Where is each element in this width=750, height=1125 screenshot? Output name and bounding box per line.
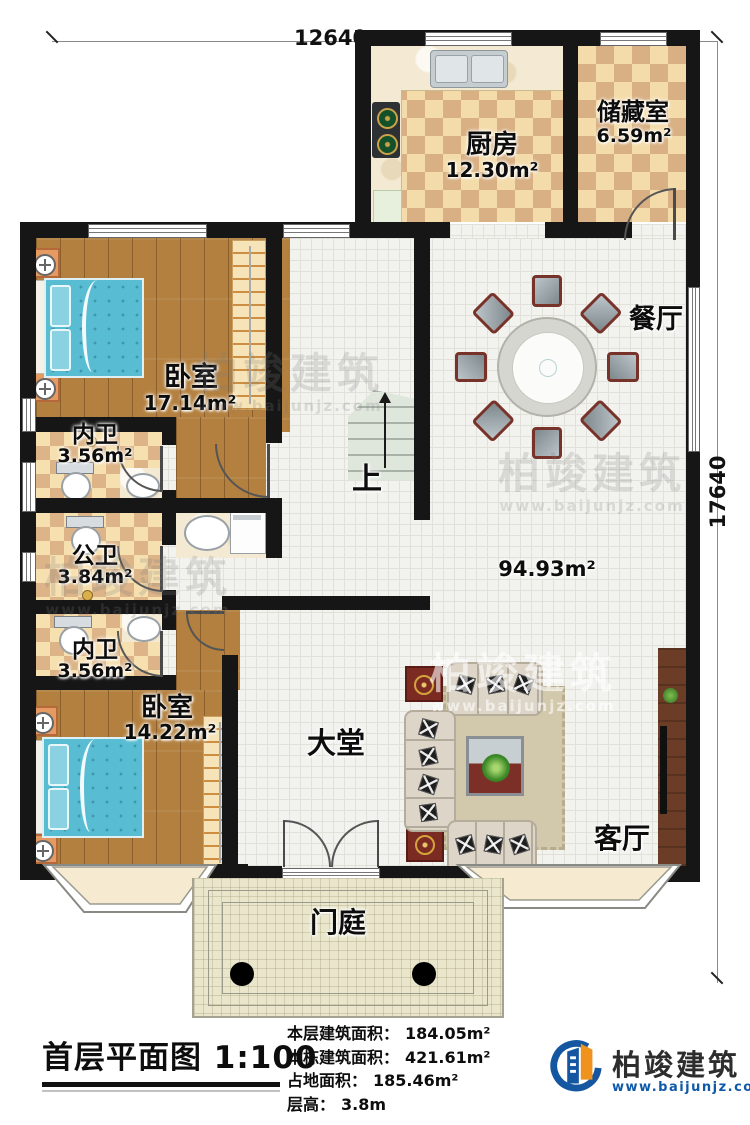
- bed: [42, 737, 144, 838]
- room-label-bedroom1: 卧室: [152, 364, 230, 392]
- fridge: [373, 190, 402, 226]
- window: [22, 462, 36, 512]
- floor-plan: 12640 17640: [0, 0, 750, 1125]
- entry-door-leaf: [377, 820, 379, 867]
- room-label-hall: 大堂: [298, 728, 374, 758]
- wall: [266, 238, 282, 443]
- burner: [377, 108, 398, 129]
- bed: [44, 278, 144, 378]
- washer-controls: [233, 515, 261, 520]
- wall: [686, 30, 700, 880]
- cushion: [455, 674, 476, 695]
- stat-row: 本层建筑面积：184.05m²: [287, 1022, 490, 1046]
- porch-column: [412, 962, 436, 986]
- burner: [377, 134, 398, 155]
- title-underline: [42, 1082, 280, 1087]
- plant-icon: [663, 688, 678, 703]
- brand-name: 柏竣建筑: [612, 1042, 740, 1084]
- toilet-bowl: [61, 472, 91, 501]
- coffee-table: [466, 736, 524, 796]
- wall: [563, 46, 578, 222]
- room-area-bedroom1: 17.14m²: [138, 393, 242, 414]
- kitchen-sink: [430, 50, 508, 88]
- window: [22, 552, 36, 582]
- title-underline-shadow: [42, 1090, 280, 1092]
- room-label-kitchen: 厨房: [452, 132, 532, 159]
- lamp-icon: [34, 378, 56, 400]
- cushion: [418, 774, 439, 795]
- porch-column: [230, 962, 254, 986]
- plan-stats: 本层建筑面积：184.05m² 本栋建筑面积：421.61m² 占地面积：185…: [287, 1022, 490, 1116]
- sofa-left: [404, 710, 456, 832]
- wardrobe: [232, 240, 266, 410]
- sofa-top: [447, 662, 543, 716]
- room-area-storage: 6.59m²: [592, 127, 676, 147]
- tv: [660, 726, 667, 814]
- dining-table-center: [539, 359, 557, 377]
- cushion: [484, 835, 504, 855]
- cushion: [418, 718, 439, 739]
- laundry-basin: [184, 515, 230, 551]
- plan-title: 首层平面图 1:100: [42, 1032, 317, 1077]
- door-leaf: [186, 611, 224, 614]
- door-leaf: [160, 446, 163, 492]
- room-label-bath-ensuite2: 内卫: [56, 638, 134, 662]
- side-table: [405, 666, 443, 702]
- stairs-arrowhead-icon: [379, 392, 391, 403]
- porch-floor: [192, 878, 504, 1018]
- gold-medallion-icon: [414, 675, 434, 695]
- cushion: [455, 834, 476, 855]
- sink-basin: [435, 55, 468, 83]
- pillow: [50, 285, 71, 327]
- blanket-fold: [80, 739, 106, 832]
- right-dimension-label: 17640: [706, 452, 730, 532]
- room-label-bath-ensuite1: 内卫: [56, 423, 134, 447]
- wall: [414, 238, 430, 520]
- gold-medallion-icon: [415, 835, 435, 855]
- window: [88, 224, 207, 238]
- wall: [355, 30, 371, 238]
- door-leaf: [267, 444, 270, 498]
- room-area-bath-ensuite1: 3.56m²: [50, 447, 140, 467]
- dining-table: [497, 317, 597, 417]
- brand-url: www.baijunjz.com: [612, 1080, 750, 1095]
- room-label-storage: 储藏室: [580, 100, 686, 125]
- room-area-bedroom2: 14.22m²: [116, 722, 224, 743]
- washing-machine: [230, 512, 266, 554]
- stairs-arrow: [384, 400, 386, 468]
- stat-row: 层高：3.8m: [287, 1093, 490, 1117]
- lamp-icon: [34, 254, 56, 276]
- dining-chair: [532, 427, 562, 459]
- wall: [222, 655, 238, 880]
- cushion: [509, 834, 530, 855]
- room-label-porch: 门庭: [298, 908, 378, 937]
- wall: [371, 222, 450, 238]
- pillow: [50, 329, 71, 371]
- wall: [20, 600, 176, 614]
- wall: [545, 222, 578, 238]
- room-label-dining: 餐厅: [616, 306, 696, 334]
- window: [283, 224, 350, 238]
- wall: [162, 432, 176, 445]
- dining-chair: [607, 352, 639, 382]
- pillow: [48, 788, 69, 830]
- door-leaf: [160, 631, 163, 677]
- room-area-kitchen: 12.30m²: [444, 160, 540, 181]
- kitchen-threshold: [450, 224, 545, 238]
- dining-chair: [532, 275, 562, 307]
- dining-chair: [455, 352, 487, 382]
- pillow: [48, 744, 69, 786]
- entry-door-leaf: [283, 820, 285, 867]
- wall: [20, 222, 36, 880]
- door-leaf: [160, 546, 163, 592]
- wall: [222, 596, 430, 610]
- blanket-fold: [82, 280, 108, 372]
- door-leaf: [673, 188, 676, 240]
- wall: [20, 498, 282, 513]
- room-area-bath-ensuite2: 3.56m²: [50, 662, 140, 682]
- brand-logo-icon: [543, 1036, 605, 1098]
- cushion: [513, 674, 535, 696]
- window: [425, 32, 512, 46]
- sink-basin: [471, 55, 504, 83]
- window: [600, 32, 667, 46]
- room-label-bedroom2: 卧室: [128, 695, 206, 722]
- room-area-hall: 94.93m²: [492, 558, 602, 580]
- cushion: [419, 803, 438, 822]
- cushion: [418, 746, 438, 766]
- room-label-living: 客厅: [578, 824, 666, 853]
- plant-icon: [482, 754, 510, 782]
- stat-row: 本栋建筑面积：421.61m²: [287, 1046, 490, 1070]
- stat-row: 占地面积：185.46m²: [287, 1069, 490, 1093]
- room-label-bath-public: 公卫: [56, 544, 134, 568]
- cushion: [486, 675, 506, 695]
- stairs-up-label: 上: [344, 464, 390, 496]
- room-area-bath-public: 3.84m²: [50, 568, 140, 588]
- stove: [372, 102, 400, 158]
- window: [22, 398, 36, 432]
